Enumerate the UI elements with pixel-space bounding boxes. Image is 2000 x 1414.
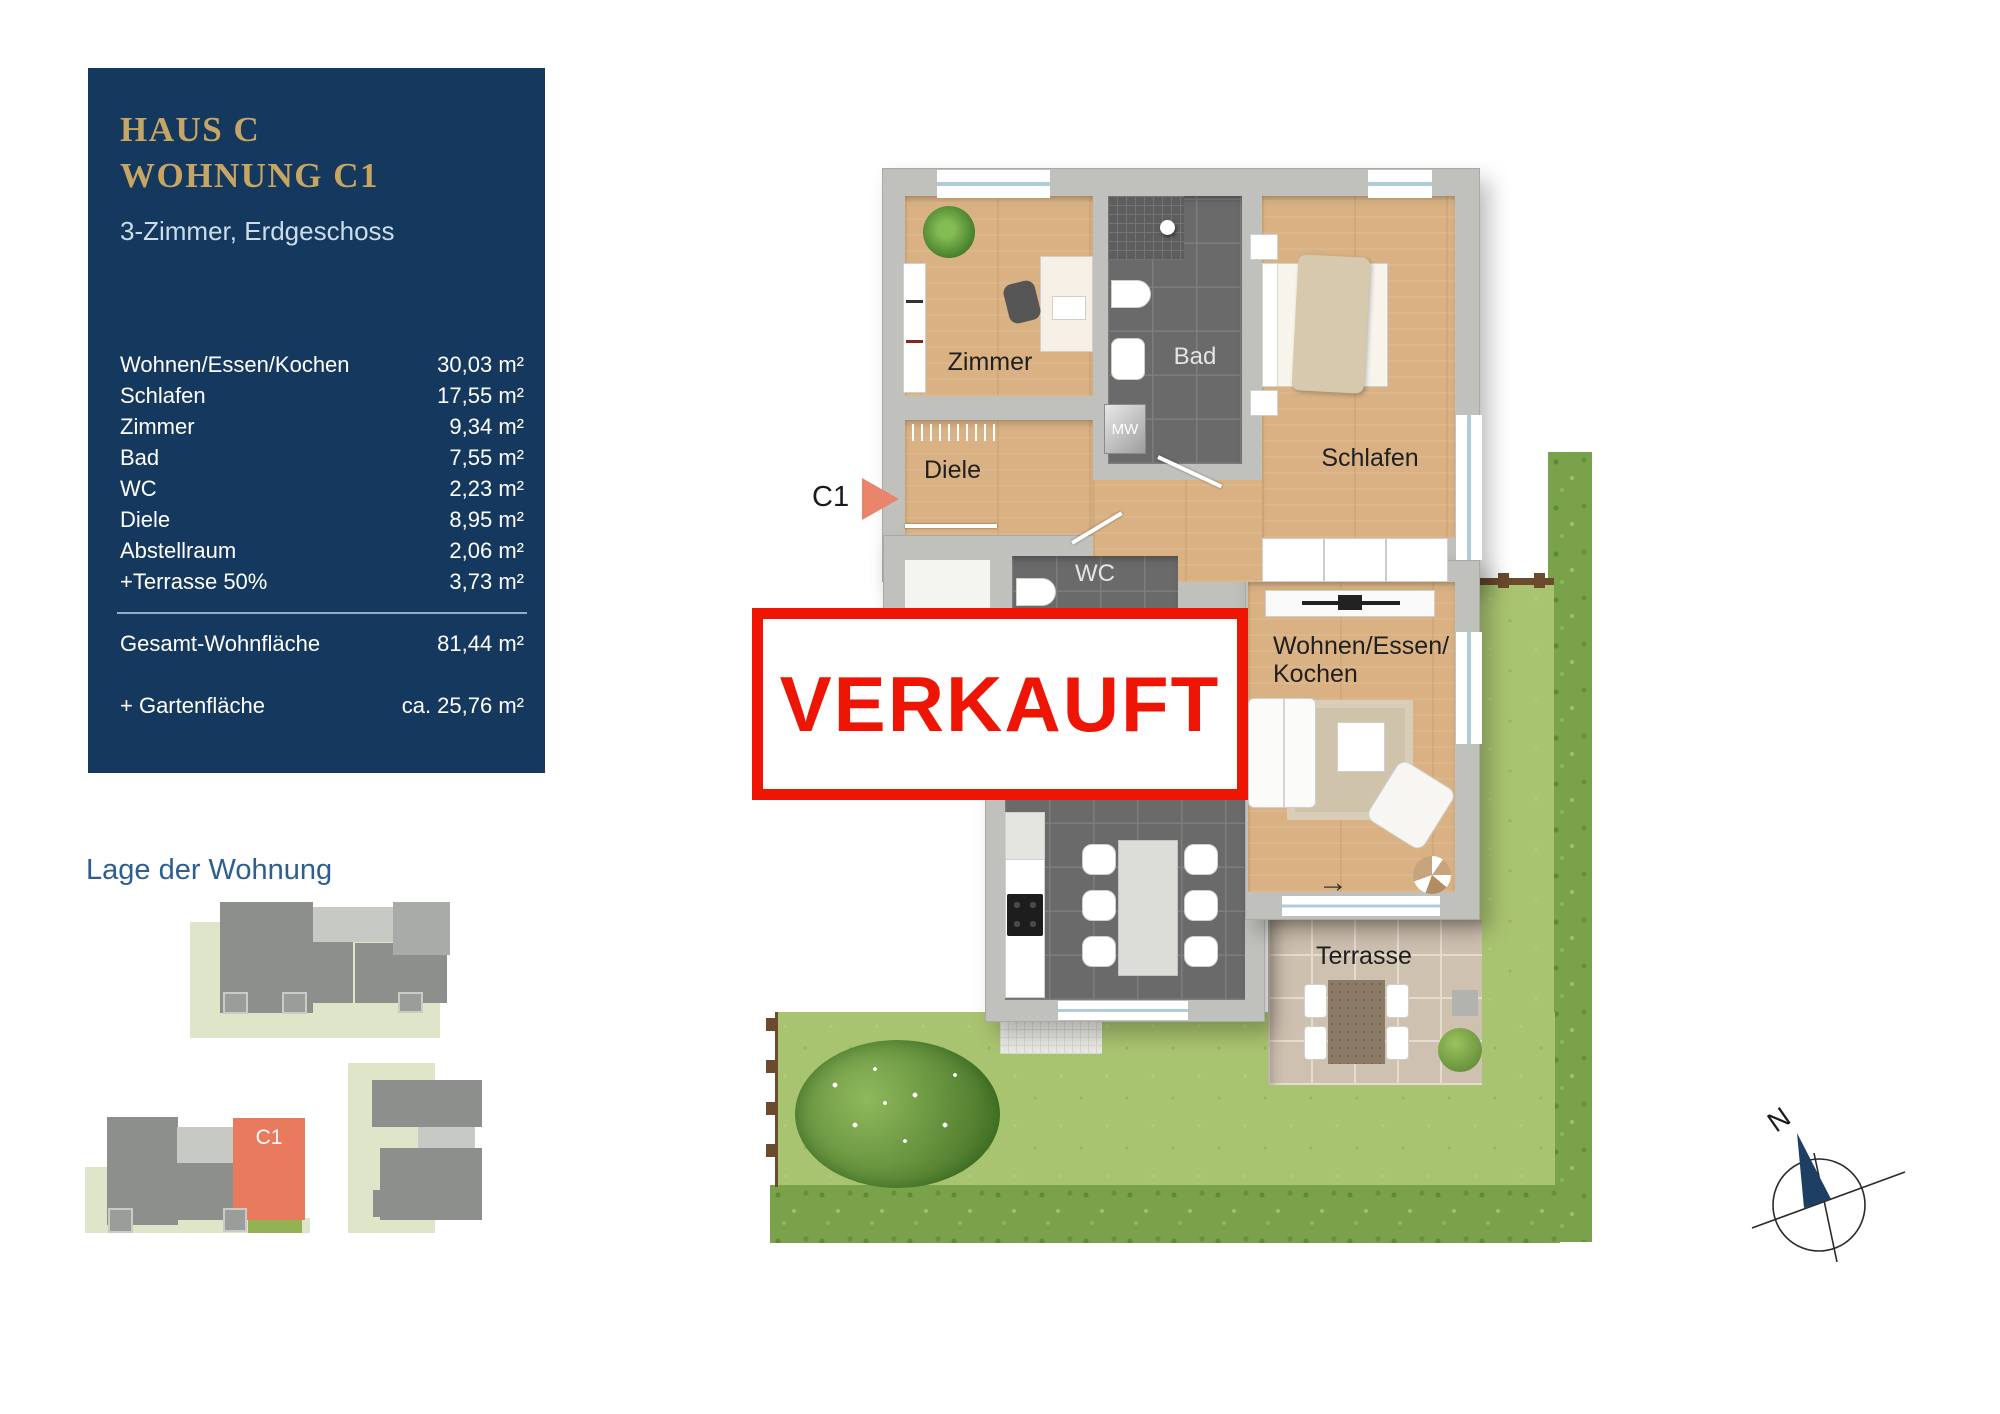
- fence-post: [766, 1102, 778, 1115]
- terrace-label: Terrasse: [1316, 942, 1436, 971]
- deco-ball: [1413, 856, 1451, 894]
- site-building: [373, 1190, 393, 1217]
- fence-left: [775, 1012, 778, 1187]
- area-row: Diele 8,95 m²: [120, 507, 524, 533]
- window-schlafen-right: [1456, 415, 1482, 560]
- site-balcony: [223, 1208, 247, 1232]
- info-panel: HAUS C WOHNUNG C1 3-Zimmer, Erdgeschoss …: [88, 68, 545, 773]
- area-row: Bad 7,55 m²: [120, 445, 524, 471]
- sold-stamp-text: VERKAUFT: [780, 659, 1221, 750]
- sofa: [1248, 698, 1316, 808]
- bed-blanket: [1291, 254, 1370, 394]
- nightstand: [1250, 390, 1278, 416]
- sold-stamp: VERKAUFT: [752, 608, 1248, 800]
- fence-post: [1498, 573, 1509, 588]
- site-building: [177, 1127, 233, 1163]
- site-balcony: [108, 1208, 133, 1233]
- area-row: WC 2,23 m²: [120, 476, 524, 502]
- total-row-value: 81,44 m²: [437, 631, 524, 657]
- terrace-bush: [1438, 1028, 1482, 1072]
- area-row-label: Abstellraum: [120, 538, 236, 564]
- tv-base: [1338, 595, 1362, 610]
- area-row-label: Zimmer: [120, 414, 195, 440]
- garden-row: + Gartenfläche ca. 25,76 m²: [120, 693, 524, 719]
- total-row: Gesamt-Wohnfläche 81,44 m²: [120, 631, 524, 657]
- label-wohnen-line1: Wohnen/Essen/: [1273, 632, 1449, 661]
- window-schlafen-top: [1368, 170, 1432, 198]
- fence-post: [766, 1144, 778, 1157]
- compass-north-label: N: [1762, 1101, 1796, 1138]
- laptop: [1052, 296, 1086, 320]
- compass-circle: [1773, 1159, 1865, 1251]
- panel-title-line2: WOHNUNG C1: [120, 156, 379, 196]
- site-balcony: [398, 992, 423, 1013]
- terrace-chair: [1304, 1026, 1327, 1060]
- shower-head: [1160, 220, 1175, 235]
- site-balcony: [223, 992, 248, 1014]
- area-row-label: WC: [120, 476, 157, 502]
- bookshelf-books: [906, 300, 923, 303]
- washing-machine: MW: [1104, 404, 1146, 454]
- dining-chair: [1184, 936, 1218, 967]
- area-row-value: 9,34 m²: [449, 414, 524, 440]
- hedge-bottom: [770, 1185, 1560, 1243]
- dining-chair: [1082, 890, 1116, 921]
- site-unit-c1-label: C1: [233, 1126, 305, 1150]
- garden-row-label: + Gartenfläche: [120, 693, 265, 719]
- site-balcony: [282, 992, 307, 1014]
- dining-chair: [1082, 936, 1116, 967]
- fence-post: [1534, 573, 1545, 588]
- fence-post: [766, 1060, 778, 1073]
- area-row-label: Wohnen/Essen/Kochen: [120, 352, 350, 378]
- area-row: +Terrasse 50% 3,73 m²: [120, 569, 524, 595]
- area-row-label: Bad: [120, 445, 159, 471]
- window-wohnen-right: [1456, 632, 1482, 744]
- coat-hooks: [912, 424, 1000, 441]
- site-building: [393, 902, 450, 955]
- washing-machine-label: MW: [1112, 421, 1139, 438]
- site-building: [313, 907, 393, 942]
- entrance-door: [905, 524, 997, 528]
- dining-chair: [1184, 890, 1218, 921]
- fence-post: [766, 1018, 778, 1031]
- dining-chair: [1082, 844, 1116, 875]
- bookshelf-books: [906, 340, 923, 343]
- label-wohnen-line2: Kochen: [1273, 660, 1358, 689]
- bed-headboard: [1262, 263, 1278, 387]
- panel-divider: [117, 612, 527, 614]
- area-row-value: 2,06 m²: [449, 538, 524, 564]
- terrace-table: [1328, 980, 1385, 1064]
- area-row: Abstellraum 2,06 m²: [120, 538, 524, 564]
- panel-title-line1: HAUS C: [120, 110, 260, 150]
- panel-subtitle: 3-Zimmer, Erdgeschoss: [120, 216, 395, 247]
- coffee-table: [1337, 722, 1385, 772]
- sliding-door-terrace: [1282, 896, 1440, 916]
- compass-needle: [1797, 1133, 1831, 1208]
- toilet-bad: [1111, 280, 1151, 308]
- kitchen-cabinet: [1005, 812, 1045, 860]
- site-building: [380, 1148, 482, 1220]
- terrace-chair: [1304, 984, 1327, 1018]
- label-diele: Diele: [905, 456, 1000, 485]
- dining-table: [1118, 840, 1178, 976]
- area-row-label: Schlafen: [120, 383, 206, 409]
- area-row: Zimmer 9,34 m²: [120, 414, 524, 440]
- area-row-value: 8,95 m²: [449, 507, 524, 533]
- wardrobe: [1262, 538, 1448, 582]
- terrace-chair: [1386, 984, 1409, 1018]
- garden-row-value: ca. 25,76 m²: [402, 693, 524, 719]
- sink: [1111, 338, 1145, 380]
- area-row-value: 3,73 m²: [449, 569, 524, 595]
- total-row-label: Gesamt-Wohnfläche: [120, 631, 320, 657]
- area-row-value: 2,23 m²: [449, 476, 524, 502]
- compass-cross-line: [1814, 1153, 1837, 1262]
- unit-marker-arrow-icon: [862, 478, 899, 520]
- compass-icon: N: [1740, 1080, 1910, 1270]
- area-row-value: 30,03 m²: [437, 352, 524, 378]
- site-building: [372, 1080, 393, 1105]
- location-heading: Lage der Wohnung: [86, 854, 332, 887]
- area-row-value: 17,55 m²: [437, 383, 524, 409]
- terrace-pillar: [1452, 990, 1478, 1016]
- area-row: Wohnen/Essen/Kochen 30,03 m²: [120, 352, 524, 378]
- plant: [923, 206, 975, 258]
- terrace-chair: [1386, 1026, 1409, 1060]
- area-row-value: 7,55 m²: [449, 445, 524, 471]
- area-row: Schlafen 17,55 m²: [120, 383, 524, 409]
- label-wc: WC: [1060, 560, 1130, 588]
- toilet-wc: [1016, 578, 1056, 606]
- dining-chair: [1184, 844, 1218, 875]
- label-zimmer: Zimmer: [920, 348, 1060, 377]
- area-row-label: +Terrasse 50%: [120, 569, 267, 595]
- exit-arrow: →: [1318, 866, 1348, 900]
- label-schlafen: Schlafen: [1300, 444, 1440, 473]
- window-zimmer: [937, 170, 1050, 198]
- site-garden-patch: [248, 1220, 302, 1233]
- window-kitchen: [1058, 1001, 1188, 1020]
- unit-marker-label: C1: [812, 481, 849, 514]
- nightstand: [1250, 234, 1278, 260]
- area-row-label: Diele: [120, 507, 170, 533]
- flower-blossoms: [815, 1055, 980, 1173]
- label-bad: Bad: [1150, 343, 1240, 371]
- cooktop: [1007, 894, 1043, 936]
